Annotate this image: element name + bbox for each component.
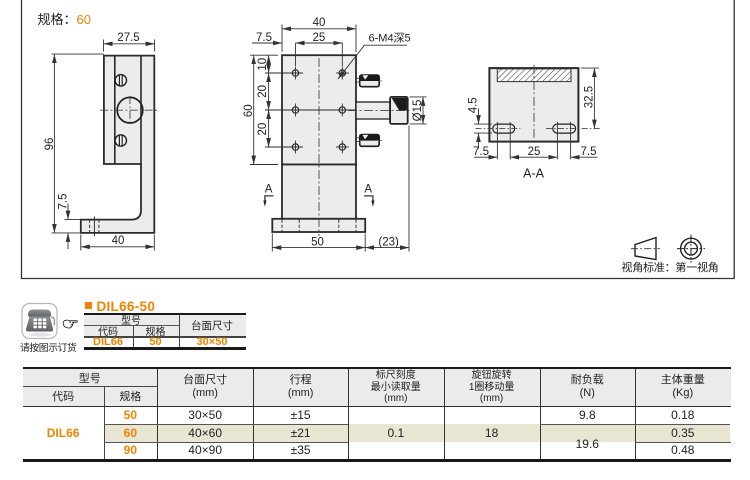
svg-text:视角标准：第一视角: 视角标准：第一视角 [621, 260, 718, 274]
svg-text:6-M4深5: 6-M4深5 [369, 32, 411, 45]
svg-text:20: 20 [257, 123, 269, 136]
svg-text:40: 40 [313, 17, 326, 29]
svg-text:7.5: 7.5 [581, 146, 597, 158]
svg-text:7.5: 7.5 [57, 194, 69, 210]
svg-text:规格：60: 规格：60 [38, 12, 91, 27]
svg-text:4.5: 4.5 [468, 97, 480, 113]
svg-text:7.5: 7.5 [473, 146, 489, 158]
svg-text:25: 25 [528, 146, 541, 158]
svg-text:Ø15: Ø15 [412, 100, 424, 122]
svg-text:32.5: 32.5 [584, 86, 596, 108]
svg-text:A: A [265, 184, 273, 196]
svg-text:20: 20 [257, 85, 269, 98]
svg-text:50: 50 [311, 236, 324, 248]
svg-text:40: 40 [112, 235, 125, 247]
svg-text:(23): (23) [378, 236, 399, 248]
svg-text:7.5: 7.5 [256, 32, 272, 44]
svg-text:27.5: 27.5 [117, 32, 139, 44]
svg-text:25: 25 [313, 32, 326, 44]
svg-text:A: A [364, 184, 372, 196]
svg-text:10: 10 [257, 58, 269, 71]
svg-text:96: 96 [44, 138, 56, 151]
svg-text:A-A: A-A [523, 167, 545, 181]
svg-text:60: 60 [243, 104, 255, 117]
